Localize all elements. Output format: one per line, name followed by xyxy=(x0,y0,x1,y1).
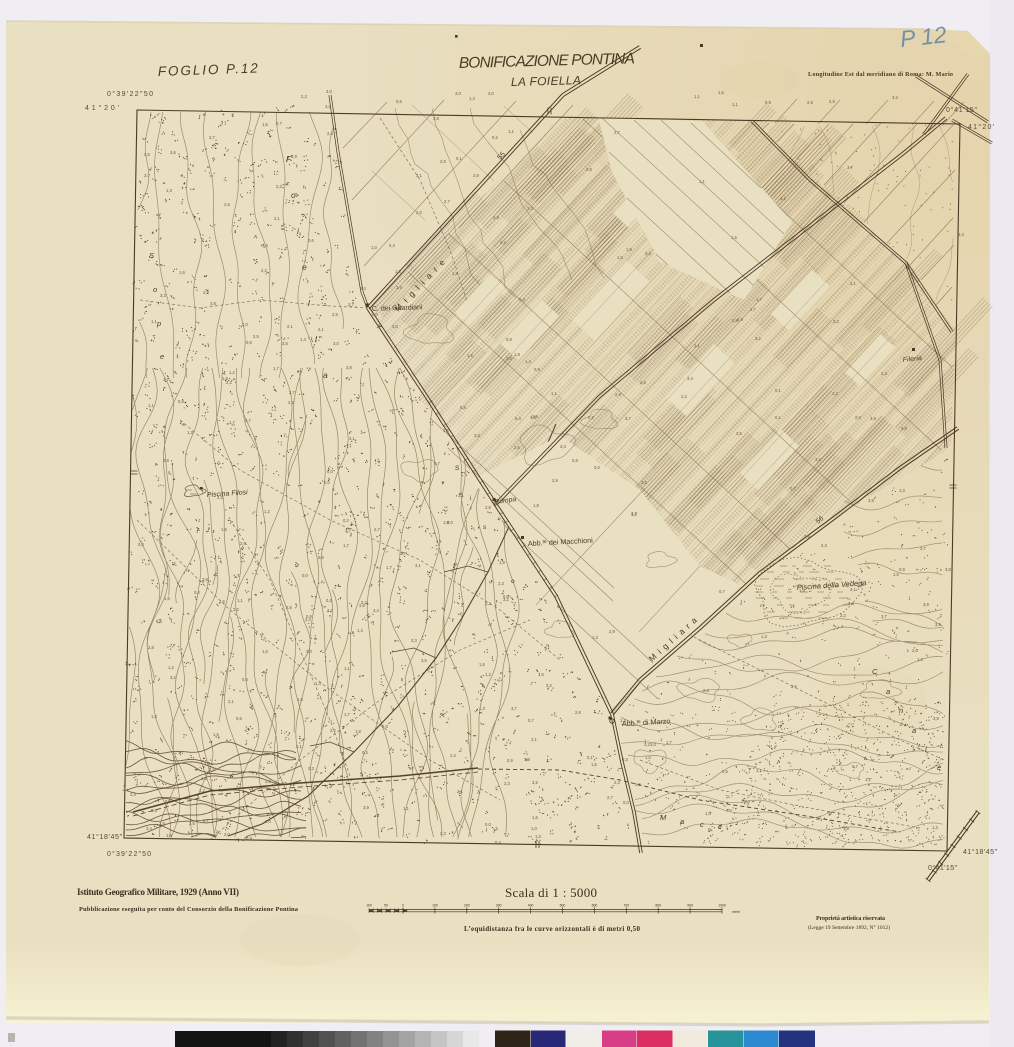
svg-text:3,7: 3,7 xyxy=(144,173,150,178)
svg-text:1,3: 1,3 xyxy=(592,635,598,640)
svg-text:1,7: 1,7 xyxy=(343,543,349,548)
svg-text:3,7: 3,7 xyxy=(631,511,637,516)
svg-text:0,5: 0,5 xyxy=(151,808,157,813)
svg-text:0°41′15″: 0°41′15″ xyxy=(928,864,958,872)
svg-text:0,4: 0,4 xyxy=(515,416,521,421)
svg-text:0,9: 0,9 xyxy=(507,758,513,763)
svg-text:P 12: P 12 xyxy=(899,21,948,52)
svg-text:3,4: 3,4 xyxy=(500,240,506,245)
svg-text:1,3: 1,3 xyxy=(932,825,938,830)
svg-text:(Legge 19 Settembre 1892, N° 1: (Legge 19 Settembre 1892, N° 1012) xyxy=(808,924,890,931)
svg-text:C: C xyxy=(872,667,878,676)
svg-text:1,2: 1,2 xyxy=(832,391,838,396)
svg-text:0,6: 0,6 xyxy=(236,716,242,721)
svg-text:1,0: 1,0 xyxy=(645,755,651,760)
svg-text:3,2: 3,2 xyxy=(546,683,552,688)
svg-text:a: a xyxy=(912,726,916,735)
svg-text:F: F xyxy=(286,154,292,164)
svg-text:1,5: 1,5 xyxy=(731,235,737,240)
svg-text:2,6: 2,6 xyxy=(240,541,246,546)
svg-text:3,4: 3,4 xyxy=(146,826,152,831)
svg-text:2,3: 2,3 xyxy=(821,543,827,548)
svg-text:1,3: 1,3 xyxy=(479,706,485,711)
svg-text:3,5: 3,5 xyxy=(641,480,647,485)
svg-text:L’equidistanza fra le curve or: L’equidistanza fra le curve orizzontali … xyxy=(464,925,641,933)
svg-text:p: p xyxy=(156,319,161,328)
svg-text:2,4: 2,4 xyxy=(327,131,333,136)
svg-text:1,5: 1,5 xyxy=(538,672,544,677)
svg-text:3,8: 3,8 xyxy=(945,567,951,572)
svg-text:1,3: 1,3 xyxy=(535,834,541,839)
svg-text:1,3: 1,3 xyxy=(357,628,363,633)
svg-text:2,7: 2,7 xyxy=(444,199,450,204)
svg-text:Pubblicazione eseguita per con: Pubblicazione eseguita per conto del Con… xyxy=(79,906,299,913)
svg-text:1,1: 1,1 xyxy=(148,403,154,408)
svg-text:2,1: 2,1 xyxy=(318,327,324,332)
svg-text:i: i xyxy=(470,495,471,502)
svg-text:1,3: 1,3 xyxy=(151,714,157,719)
svg-text:1,3: 1,3 xyxy=(469,96,475,101)
svg-text:Longitudine Est dal meridiano: Longitudine Est dal meridiano di Roma: M… xyxy=(808,71,953,78)
svg-text:500: 500 xyxy=(560,904,566,908)
svg-text:3,8: 3,8 xyxy=(346,365,352,370)
svg-text:2,6: 2,6 xyxy=(640,380,646,385)
svg-text:0°39′22″50: 0°39′22″50 xyxy=(107,90,153,98)
svg-text:3,8: 3,8 xyxy=(202,577,208,582)
svg-text:0,9: 0,9 xyxy=(899,567,905,572)
svg-text:0,2: 0,2 xyxy=(361,600,367,605)
svg-text:M: M xyxy=(660,813,667,822)
svg-text:200: 200 xyxy=(464,904,470,908)
svg-text:metri: metri xyxy=(732,910,740,914)
svg-text:2,2: 2,2 xyxy=(261,268,267,273)
svg-text:3,2: 3,2 xyxy=(532,780,538,785)
svg-text:0,1: 0,1 xyxy=(456,156,462,161)
svg-text:2,9: 2,9 xyxy=(737,317,743,322)
svg-text:2,4: 2,4 xyxy=(450,753,456,758)
svg-text:Scala di 1 : 5000: Scala di 1 : 5000 xyxy=(505,885,597,900)
svg-text:2,8: 2,8 xyxy=(807,100,813,105)
svg-text:e: e xyxy=(160,352,164,361)
svg-text:o: o xyxy=(511,578,515,585)
svg-text:2,0: 2,0 xyxy=(265,779,271,784)
svg-text:0,2: 0,2 xyxy=(492,135,498,140)
svg-text:1,5: 1,5 xyxy=(467,353,473,358)
svg-text:n: n xyxy=(899,706,903,715)
svg-text:1,5: 1,5 xyxy=(443,428,449,433)
svg-text:Proprietà artistica riservata: Proprietà artistica riservata xyxy=(816,916,885,922)
svg-text:2,2: 2,2 xyxy=(840,613,846,618)
svg-text:1,4: 1,4 xyxy=(315,681,321,686)
svg-text:1,7: 1,7 xyxy=(273,366,279,371)
svg-text:1,2: 1,2 xyxy=(485,601,491,606)
svg-text:1,0: 1,0 xyxy=(531,826,537,831)
svg-text:2,3: 2,3 xyxy=(881,371,887,376)
svg-text:2,9: 2,9 xyxy=(532,414,538,419)
svg-text:3,3: 3,3 xyxy=(204,761,210,766)
svg-text:2,9: 2,9 xyxy=(609,629,615,634)
svg-text:100: 100 xyxy=(366,904,372,908)
svg-text:2,0: 2,0 xyxy=(855,415,861,420)
svg-text:3,7: 3,7 xyxy=(163,377,169,382)
svg-text:0,8: 0,8 xyxy=(572,458,578,463)
svg-text:S: S xyxy=(455,465,460,472)
svg-text:1,2: 1,2 xyxy=(199,788,205,793)
svg-text:3,7: 3,7 xyxy=(327,608,333,613)
svg-text:3,0: 3,0 xyxy=(326,89,332,94)
svg-text:1,8: 1,8 xyxy=(355,729,361,734)
svg-text:3,0: 3,0 xyxy=(455,91,461,96)
svg-text:2,2: 2,2 xyxy=(301,94,307,99)
svg-text:3,5: 3,5 xyxy=(421,658,427,663)
svg-text:1,4: 1,4 xyxy=(300,337,306,342)
svg-text:1,1: 1,1 xyxy=(403,806,409,811)
svg-text:2,1: 2,1 xyxy=(850,281,856,286)
svg-text:0,0: 0,0 xyxy=(324,480,330,485)
svg-text:2,1: 2,1 xyxy=(274,216,280,221)
svg-text:3,9: 3,9 xyxy=(291,154,297,159)
svg-text:2,7: 2,7 xyxy=(374,527,380,532)
svg-text:1,1: 1,1 xyxy=(865,777,871,782)
svg-text:2,9: 2,9 xyxy=(159,821,165,826)
svg-text:1,6: 1,6 xyxy=(164,596,170,601)
svg-text:2,1: 2,1 xyxy=(531,737,537,742)
svg-text:1,6: 1,6 xyxy=(479,662,485,667)
svg-text:0,1: 0,1 xyxy=(587,755,593,760)
svg-text:3,3: 3,3 xyxy=(440,831,446,836)
svg-text:0,7: 0,7 xyxy=(245,418,251,423)
svg-text:41°18′45″: 41°18′45″ xyxy=(963,848,998,856)
svg-text:a: a xyxy=(323,370,328,380)
svg-text:1,1: 1,1 xyxy=(756,768,762,773)
svg-text:3,8: 3,8 xyxy=(163,458,169,463)
svg-text:3,7: 3,7 xyxy=(400,551,406,556)
svg-text:2,9: 2,9 xyxy=(615,392,621,397)
svg-text:1,6: 1,6 xyxy=(395,269,401,274)
svg-text:1000: 1000 xyxy=(718,904,726,908)
svg-text:3,5: 3,5 xyxy=(325,104,331,109)
svg-text:2,0: 2,0 xyxy=(382,724,388,729)
svg-text:e: e xyxy=(937,763,941,772)
svg-text:2,5: 2,5 xyxy=(253,334,259,339)
svg-text:0,3: 0,3 xyxy=(326,598,332,603)
svg-text:0,9: 0,9 xyxy=(506,337,512,342)
svg-text:a: a xyxy=(886,687,890,696)
svg-text:2,1: 2,1 xyxy=(296,744,302,749)
svg-text:1,5: 1,5 xyxy=(262,122,268,127)
svg-text:0°39′22″50: 0°39′22″50 xyxy=(107,850,151,858)
svg-text:1,5: 1,5 xyxy=(213,732,219,737)
svg-text:1,6: 1,6 xyxy=(219,599,225,604)
svg-text:3,0: 3,0 xyxy=(224,832,230,837)
svg-text:0,7: 0,7 xyxy=(434,461,440,466)
svg-text:3,0: 3,0 xyxy=(506,356,512,361)
svg-text:3,3: 3,3 xyxy=(411,638,417,643)
svg-text:1,3: 1,3 xyxy=(187,430,193,435)
svg-text:2,6: 2,6 xyxy=(262,243,268,248)
svg-text:0,2: 0,2 xyxy=(165,799,171,804)
svg-text:0,0: 0,0 xyxy=(327,469,333,474)
svg-text:1,6: 1,6 xyxy=(532,815,538,820)
svg-text:3,9: 3,9 xyxy=(396,285,402,290)
svg-text:1,8: 1,8 xyxy=(514,352,520,357)
svg-text:3,9: 3,9 xyxy=(923,602,929,607)
svg-text:2,3: 2,3 xyxy=(276,184,282,189)
svg-text:2,2: 2,2 xyxy=(681,394,687,399)
svg-text:0,2: 0,2 xyxy=(194,590,200,595)
svg-text:2,6: 2,6 xyxy=(514,445,520,450)
svg-text:0,3: 0,3 xyxy=(622,757,628,762)
svg-text:3,3: 3,3 xyxy=(160,293,166,298)
svg-text:0,3: 0,3 xyxy=(308,766,314,771)
svg-text:LA FOIELLA: LA FOIELLA xyxy=(511,73,583,89)
svg-text:2,5: 2,5 xyxy=(209,767,215,772)
svg-text:0,4: 0,4 xyxy=(519,297,525,302)
svg-text:2,7: 2,7 xyxy=(203,818,209,823)
svg-text:1,1: 1,1 xyxy=(344,666,350,671)
svg-text:0,9: 0,9 xyxy=(178,399,184,404)
svg-text:c: c xyxy=(718,822,722,831)
svg-text:0,2: 0,2 xyxy=(343,518,349,523)
svg-text:2,6: 2,6 xyxy=(189,821,195,826)
svg-text:2,3: 2,3 xyxy=(288,400,294,405)
svg-text:3,5: 3,5 xyxy=(736,431,742,436)
svg-text:600: 600 xyxy=(592,904,598,908)
svg-text:0,0: 0,0 xyxy=(447,520,453,525)
svg-text:3,9: 3,9 xyxy=(933,716,939,721)
svg-text:2,8: 2,8 xyxy=(829,99,835,104)
svg-text:2,8: 2,8 xyxy=(575,710,581,715)
svg-text:1,6: 1,6 xyxy=(262,649,268,654)
svg-text:2,0: 2,0 xyxy=(416,210,422,215)
svg-text:100: 100 xyxy=(432,904,438,908)
svg-text:2,3: 2,3 xyxy=(614,780,620,785)
svg-text:3,4: 3,4 xyxy=(815,457,821,462)
svg-text:1,1: 1,1 xyxy=(732,102,738,107)
svg-text:2,5: 2,5 xyxy=(144,152,150,157)
svg-text:1,7: 1,7 xyxy=(666,740,672,745)
svg-text:2,4: 2,4 xyxy=(744,799,750,804)
svg-text:1,1: 1,1 xyxy=(694,343,700,348)
svg-text:2,8: 2,8 xyxy=(485,505,491,510)
svg-text:3,6: 3,6 xyxy=(170,150,176,155)
svg-text:1,3: 1,3 xyxy=(917,657,923,662)
svg-text:1,8: 1,8 xyxy=(617,255,623,260)
svg-text:0,4: 0,4 xyxy=(389,243,395,248)
svg-text:2,0: 2,0 xyxy=(242,322,248,327)
svg-text:a: a xyxy=(680,817,684,826)
svg-text:3,3: 3,3 xyxy=(833,319,839,324)
svg-text:2,5: 2,5 xyxy=(440,159,446,164)
svg-text:o: o xyxy=(153,285,157,294)
svg-text:3,2: 3,2 xyxy=(170,675,176,680)
svg-text:2,4: 2,4 xyxy=(305,617,311,622)
svg-text:3,8: 3,8 xyxy=(210,301,216,306)
svg-text:3,2: 3,2 xyxy=(645,251,651,256)
svg-text:1,2: 1,2 xyxy=(168,665,174,670)
svg-text:0: 0 xyxy=(402,904,404,908)
svg-text:3,9: 3,9 xyxy=(935,622,941,627)
svg-text:2,4: 2,4 xyxy=(130,792,136,797)
svg-text:1,0: 1,0 xyxy=(371,245,377,250)
svg-text:0,1: 0,1 xyxy=(775,388,781,393)
svg-text:2,9: 2,9 xyxy=(493,215,499,220)
svg-text:1,6: 1,6 xyxy=(179,270,185,275)
svg-text:2,1: 2,1 xyxy=(287,324,293,329)
svg-text:3,0: 3,0 xyxy=(306,649,312,654)
svg-text:1,2: 1,2 xyxy=(264,509,270,514)
svg-text:2,3: 2,3 xyxy=(504,781,510,786)
svg-text:3,8: 3,8 xyxy=(870,416,876,421)
svg-text:800: 800 xyxy=(655,904,661,908)
svg-text:1,5: 1,5 xyxy=(591,762,597,767)
svg-text:1,9: 1,9 xyxy=(626,247,632,252)
svg-text:1,9: 1,9 xyxy=(843,826,849,831)
svg-text:2,0: 2,0 xyxy=(265,819,271,824)
svg-text:0,6: 0,6 xyxy=(242,677,248,682)
svg-text:1,0: 1,0 xyxy=(705,811,711,816)
svg-text:1,1: 1,1 xyxy=(780,196,786,201)
svg-text:0,6: 0,6 xyxy=(318,555,324,560)
svg-text:0°41′15″: 0°41′15″ xyxy=(946,106,978,114)
svg-text:3,7: 3,7 xyxy=(920,546,926,551)
svg-text:2,7: 2,7 xyxy=(607,795,613,800)
svg-text:1,6: 1,6 xyxy=(201,776,207,781)
svg-text:1,7: 1,7 xyxy=(344,712,350,717)
svg-text:2,4: 2,4 xyxy=(958,232,964,237)
svg-text:3,0: 3,0 xyxy=(333,341,339,346)
svg-text:1,4: 1,4 xyxy=(525,359,531,364)
svg-text:3,2: 3,2 xyxy=(233,607,239,612)
svg-text:3,7: 3,7 xyxy=(209,135,215,140)
svg-text:3,4: 3,4 xyxy=(687,376,693,381)
svg-text:0,0: 0,0 xyxy=(302,573,308,578)
svg-text:3,4: 3,4 xyxy=(373,608,379,613)
svg-text:1,8: 1,8 xyxy=(166,833,172,838)
svg-text:e: e xyxy=(302,262,307,272)
svg-text:3,8: 3,8 xyxy=(433,116,439,121)
svg-text:2,7: 2,7 xyxy=(289,390,295,395)
svg-text:2,9: 2,9 xyxy=(203,290,209,295)
svg-text:3,7: 3,7 xyxy=(847,165,853,170)
svg-text:0,7: 0,7 xyxy=(852,764,858,769)
svg-text:3,0: 3,0 xyxy=(650,742,656,747)
svg-text:1,1: 1,1 xyxy=(699,179,705,184)
svg-text:0,2: 0,2 xyxy=(588,415,594,420)
svg-text:1,7: 1,7 xyxy=(750,307,756,312)
svg-text:o: o xyxy=(291,190,296,200)
svg-text:3,2: 3,2 xyxy=(503,597,509,602)
svg-text:2,7: 2,7 xyxy=(348,302,354,307)
svg-text:3,0: 3,0 xyxy=(488,91,494,96)
svg-text:1,8: 1,8 xyxy=(222,376,228,381)
svg-text:3,9: 3,9 xyxy=(363,805,369,810)
svg-text:3,3: 3,3 xyxy=(848,601,854,606)
svg-text:1,7: 1,7 xyxy=(756,297,762,302)
svg-text:1,7: 1,7 xyxy=(386,565,392,570)
svg-text:0,0: 0,0 xyxy=(623,800,629,805)
svg-text:0,8: 0,8 xyxy=(246,340,252,345)
svg-text:3,5: 3,5 xyxy=(868,498,874,503)
svg-text:1,8: 1,8 xyxy=(533,503,539,508)
svg-text:2,9: 2,9 xyxy=(332,312,338,317)
svg-text:3,3: 3,3 xyxy=(474,433,480,438)
svg-text:1,7: 1,7 xyxy=(229,420,235,425)
svg-text:2,2: 2,2 xyxy=(330,728,336,733)
svg-text:0,7: 0,7 xyxy=(719,589,725,594)
svg-text:3,7: 3,7 xyxy=(881,614,887,619)
svg-text:2,8: 2,8 xyxy=(148,645,154,650)
svg-text:900: 900 xyxy=(687,904,693,908)
svg-text:2,3: 2,3 xyxy=(498,581,504,586)
svg-text:1,6: 1,6 xyxy=(221,527,227,532)
svg-text:0,8: 0,8 xyxy=(586,167,592,172)
svg-text:1,3: 1,3 xyxy=(166,188,172,193)
svg-text:0,9: 0,9 xyxy=(765,100,771,105)
svg-text:2,6: 2,6 xyxy=(912,648,918,653)
svg-text:1,5: 1,5 xyxy=(297,697,303,702)
svg-text:1,2: 1,2 xyxy=(229,370,235,375)
svg-text:0,5: 0,5 xyxy=(722,769,728,774)
svg-text:1,5: 1,5 xyxy=(893,572,899,577)
svg-text:0,7: 0,7 xyxy=(276,121,282,126)
svg-text:2,4: 2,4 xyxy=(360,286,366,291)
svg-text:0,5: 0,5 xyxy=(635,782,641,787)
svg-text:t: t xyxy=(497,552,499,559)
svg-text:0,6: 0,6 xyxy=(308,238,314,243)
svg-text:2,8: 2,8 xyxy=(473,173,479,178)
svg-text:2,1: 2,1 xyxy=(457,789,463,794)
svg-text:300: 300 xyxy=(496,904,502,908)
svg-text:1,8: 1,8 xyxy=(156,619,162,624)
svg-text:1,1: 1,1 xyxy=(508,129,514,134)
svg-text:0,1: 0,1 xyxy=(775,415,781,420)
svg-text:700: 700 xyxy=(623,904,629,908)
svg-text:0,5: 0,5 xyxy=(396,99,402,104)
svg-text:0,9: 0,9 xyxy=(534,367,540,372)
svg-text:3,9: 3,9 xyxy=(901,426,907,431)
svg-text:3,4: 3,4 xyxy=(560,444,566,449)
svg-text:1,1: 1,1 xyxy=(237,598,243,603)
svg-text:3,7: 3,7 xyxy=(345,528,351,533)
svg-text:1,2: 1,2 xyxy=(485,672,491,677)
svg-text:2,6: 2,6 xyxy=(286,605,292,610)
svg-text:2,9: 2,9 xyxy=(552,478,558,483)
svg-text:0,8: 0,8 xyxy=(460,405,466,410)
svg-text:S: S xyxy=(149,251,154,260)
svg-text:0,0: 0,0 xyxy=(485,822,491,827)
svg-text:0,7: 0,7 xyxy=(557,604,563,609)
svg-text:3,7: 3,7 xyxy=(625,416,631,421)
svg-text:2,6: 2,6 xyxy=(224,202,230,207)
svg-text:3,2: 3,2 xyxy=(755,336,761,341)
svg-text:2,3: 2,3 xyxy=(527,206,533,211)
svg-text:50: 50 xyxy=(384,904,388,908)
svg-text:Istituto Geografico Militare,: Istituto Geografico Militare, 1929 (Anno… xyxy=(77,887,239,897)
svg-text:1,8: 1,8 xyxy=(452,271,458,276)
svg-text:3,5: 3,5 xyxy=(282,341,288,346)
svg-text:3,1: 3,1 xyxy=(458,493,464,498)
svg-text:3,2: 3,2 xyxy=(892,95,898,100)
svg-text:3,1: 3,1 xyxy=(349,436,355,441)
svg-text:400: 400 xyxy=(528,904,534,908)
svg-text:0,4: 0,4 xyxy=(362,750,368,755)
svg-text:2,7: 2,7 xyxy=(614,130,620,135)
svg-text:3,7: 3,7 xyxy=(511,706,517,711)
svg-text:1,1: 1,1 xyxy=(551,391,557,396)
svg-text:2,1: 2,1 xyxy=(228,699,234,704)
svg-text:3,0: 3,0 xyxy=(392,324,398,329)
